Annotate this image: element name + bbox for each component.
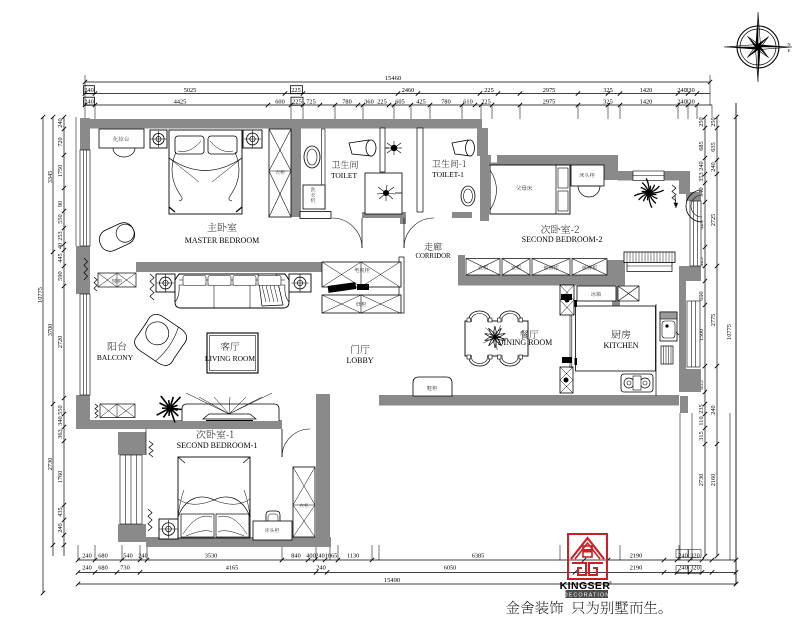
svg-text:LOBBY: LOBBY: [346, 356, 373, 365]
svg-text:240: 240: [57, 118, 64, 127]
svg-text:360: 360: [364, 99, 373, 106]
svg-text:720: 720: [57, 137, 64, 146]
svg-text:E: E: [788, 48, 791, 53]
svg-text:240: 240: [82, 565, 91, 572]
svg-text:4165: 4165: [226, 565, 239, 572]
svg-text:2720: 2720: [57, 336, 64, 349]
svg-text:TOILET: TOILET: [331, 171, 358, 180]
svg-text:1420: 1420: [640, 99, 653, 106]
svg-text:330: 330: [685, 99, 694, 106]
svg-text:225: 225: [291, 87, 300, 94]
svg-text:15490: 15490: [384, 577, 400, 584]
svg-text:2975: 2975: [543, 99, 556, 106]
svg-text:353: 353: [698, 172, 705, 181]
svg-text:253: 253: [57, 231, 64, 240]
svg-text:TOILET-1: TOILET-1: [432, 170, 464, 179]
svg-text:1760: 1760: [57, 471, 64, 484]
svg-text:1420: 1420: [640, 87, 653, 94]
svg-text:3345: 3345: [47, 171, 54, 184]
svg-text:SECOND BEDROOM-2: SECOND BEDROOM-2: [522, 235, 603, 244]
svg-text:2775: 2775: [710, 314, 717, 327]
svg-text:550: 550: [57, 214, 64, 223]
svg-text:CORRIDOR: CORRIDOR: [415, 253, 451, 260]
svg-text:635: 635: [710, 142, 717, 151]
svg-text:1130: 1130: [347, 553, 359, 560]
svg-text:1750: 1750: [57, 165, 64, 178]
svg-text:240: 240: [710, 405, 717, 414]
svg-text:110: 110: [698, 416, 705, 425]
svg-text:840: 840: [291, 553, 300, 560]
svg-text:6050: 6050: [444, 565, 457, 572]
svg-text:KITCHEN: KITCHEN: [603, 341, 638, 350]
svg-text:540: 540: [123, 553, 132, 560]
svg-text:2190: 2190: [630, 565, 643, 572]
svg-text:2160: 2160: [710, 474, 717, 487]
svg-text:425: 425: [416, 99, 425, 106]
svg-text:610: 610: [463, 99, 472, 106]
svg-text:90: 90: [57, 201, 64, 207]
svg-text:250: 250: [698, 117, 705, 126]
svg-text:2730: 2730: [47, 458, 54, 471]
svg-text:780: 780: [342, 99, 351, 106]
svg-text:225: 225: [484, 87, 493, 94]
svg-text:DINING ROOM: DINING ROOM: [498, 338, 552, 347]
svg-text:225: 225: [377, 99, 386, 106]
svg-text:®: ®: [609, 580, 612, 585]
svg-text:590: 590: [57, 271, 64, 280]
svg-text:10775: 10775: [37, 287, 44, 303]
svg-text:2975: 2975: [543, 87, 556, 94]
svg-text:SECOND BEDROOM-1: SECOND BEDROOM-1: [177, 441, 258, 450]
svg-text:40: 40: [57, 243, 64, 249]
svg-text:690: 690: [698, 291, 705, 300]
svg-text:435: 435: [57, 507, 64, 516]
svg-text:550: 550: [57, 405, 64, 414]
svg-text:2725: 2725: [710, 214, 717, 227]
svg-text:240: 240: [698, 161, 705, 170]
svg-text:240: 240: [710, 162, 717, 171]
svg-text:3700: 3700: [47, 324, 54, 337]
svg-text:235: 235: [698, 404, 705, 413]
svg-text:600: 600: [275, 99, 284, 106]
svg-text:MASTER BEDROOM: MASTER BEDROOM: [185, 236, 259, 245]
svg-text:3530: 3530: [205, 553, 218, 560]
svg-text:4425: 4425: [174, 99, 187, 106]
svg-text:315: 315: [698, 431, 705, 440]
svg-text:240: 240: [57, 523, 64, 532]
svg-text:5025: 5025: [184, 87, 197, 94]
svg-text:240: 240: [82, 553, 91, 560]
svg-text:2460: 2460: [402, 87, 415, 94]
svg-text:DECORATION: DECORATION: [564, 592, 611, 598]
svg-text:225: 225: [292, 99, 301, 106]
svg-text:340: 340: [57, 416, 64, 425]
svg-text:780: 780: [441, 99, 450, 106]
svg-text:6385: 6385: [472, 553, 485, 560]
svg-text:2730: 2730: [698, 474, 705, 487]
svg-text:605: 605: [395, 99, 404, 106]
svg-text:225: 225: [481, 99, 490, 106]
svg-text:445: 445: [57, 253, 64, 262]
svg-text:240: 240: [138, 553, 147, 560]
svg-text:685: 685: [698, 141, 705, 150]
svg-text:725: 725: [306, 99, 315, 106]
svg-text:730: 730: [120, 565, 129, 572]
svg-text:680: 680: [98, 553, 107, 560]
svg-text:15460: 15460: [385, 75, 401, 82]
svg-text:250: 250: [710, 117, 717, 126]
svg-text:BALCONY: BALCONY: [97, 353, 134, 362]
svg-text:330: 330: [685, 87, 694, 94]
svg-text:10775: 10775: [726, 324, 733, 340]
svg-text:680: 680: [98, 565, 107, 572]
svg-text:LIVING ROOM: LIVING ROOM: [205, 354, 256, 363]
svg-text:2190: 2190: [630, 553, 643, 560]
svg-text:363: 363: [57, 429, 64, 438]
svg-text:240: 240: [678, 553, 687, 560]
